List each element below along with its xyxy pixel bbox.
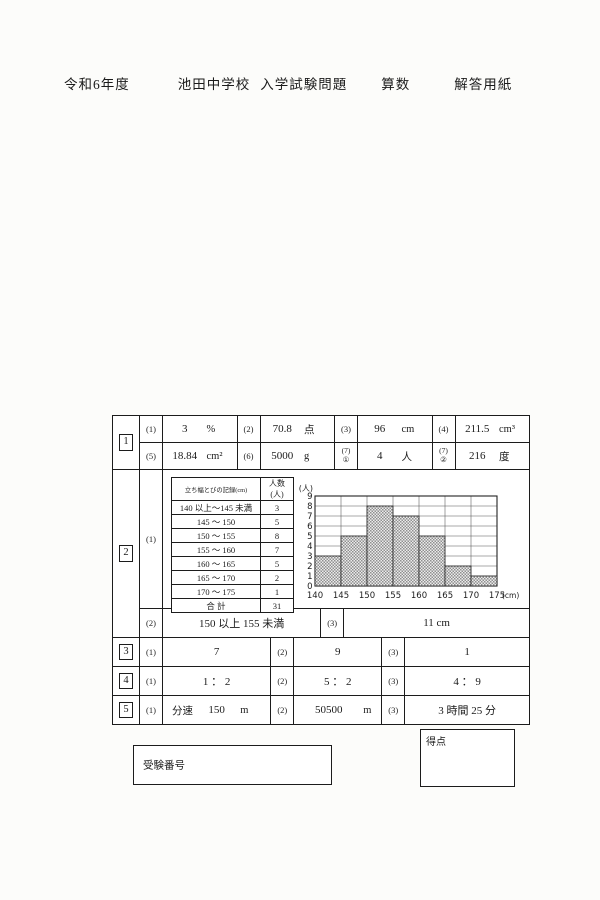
frequency-table-header: 立ち幅とびの記録(cm) 人数(人) (172, 478, 294, 501)
hist-y-tick: 8 (307, 502, 312, 512)
score-label: 得点 (426, 733, 446, 748)
p1-a1-unit: % (207, 424, 237, 435)
hist-x-tick: 155 (385, 591, 401, 601)
p5-a3-answer: 3 時間 25 分 (405, 696, 529, 724)
p1-a2-unit: 点 (304, 422, 334, 437)
hist-x-tick: 170 (463, 591, 479, 601)
problem-3-number-cell: 3 (113, 638, 140, 666)
freq-range: 165 ～ 170 (172, 571, 261, 585)
p2-a2-label: (2) (140, 609, 163, 637)
p1-a5-label: (5) (140, 443, 163, 469)
p2-a1-label: (1) (140, 470, 163, 608)
p1-a6-unit: g (304, 451, 334, 462)
problem-4-number: 4 (119, 673, 133, 690)
p1-a8-unit: 度 (499, 449, 529, 464)
hist-xlabel: (cm) (502, 591, 519, 600)
freq-range: 170 ～ 175 (172, 585, 261, 599)
p5-a2-label: (2) (271, 696, 294, 724)
problem-2-number: 2 (119, 545, 133, 562)
p1-a2-answer: 70.8 点 (261, 416, 336, 442)
freq-total-row: 合 計31 (172, 599, 294, 613)
p1-a5-value: 18.84 (163, 450, 207, 462)
problem-5-number-cell: 5 (113, 696, 140, 724)
p4-a2-answer: 5 ： 2 (294, 667, 382, 695)
p4-a2-label: (2) (271, 667, 294, 695)
problem-2-row: 2 (1) 立ち幅とびの記録(cm) 人数(人) 140 以上～145 未満3 … (113, 469, 529, 637)
title-school: 池田中学校 (178, 73, 251, 93)
p1-a2-label: (2) (238, 416, 261, 442)
hist-x-tick: 150 (359, 591, 375, 601)
p2-a2-value: 150 以上 155 未満 (199, 615, 284, 631)
p1-a6-label: (6) (238, 443, 261, 469)
problem-5-number: 5 (119, 702, 133, 719)
problem-3-row: 3 (1) 7 (2) 9 (3) 1 (113, 637, 529, 666)
hist-y-tick: 6 (307, 522, 312, 532)
freq-row: 145 ～ 1505 (172, 515, 294, 529)
problem-1-number-cell: 1 (113, 416, 140, 469)
freq-row: 170 ～ 1751 (172, 585, 294, 599)
p2-a3-value: 11 cm (423, 617, 450, 629)
p3-a1-answer: 7 (163, 638, 271, 666)
freq-count: 5 (261, 557, 294, 571)
p1-a4-answer: 211.5 cm³ (456, 416, 530, 442)
hist-y-tick: 9 (307, 492, 312, 502)
p1-a2-value: 70.8 (261, 423, 305, 435)
problem-1-row: 1 (1) 3 % (2) 70.8 点 (3) 96 cm (4) (113, 416, 529, 469)
p4-a3-label: (3) (382, 667, 405, 695)
p1-a5-unit: cm² (207, 451, 237, 462)
p1-a1-answer: 3 % (163, 416, 238, 442)
p1-a7-answer: 4 人 (358, 443, 433, 469)
problem-4-number-cell: 4 (113, 667, 140, 695)
hist-y-tick: 2 (307, 562, 312, 572)
p3-a2-value: 9 (335, 646, 341, 658)
freq-total-label: 合 計 (172, 599, 261, 613)
p5-a1-unit: m (240, 705, 270, 716)
p1-a7-label-sub: ① (343, 456, 350, 465)
p1-a7-unit: 人 (402, 449, 432, 464)
hist-x-tick: 145 (333, 591, 349, 601)
frequency-table: 立ち幅とびの記録(cm) 人数(人) 140 以上～145 未満3 145 ～ … (171, 477, 294, 613)
freq-row: 165 ～ 1702 (172, 571, 294, 585)
histogram-svg: 0123456789140145150155160165170175(人)(cm… (295, 476, 527, 602)
examinee-number-box: 受験番号 (133, 745, 332, 785)
p3-a1-label: (1) (140, 638, 163, 666)
title-sheet-label: 解答用紙 (454, 73, 512, 93)
p5-a3-value: 3 時間 25 分 (438, 702, 496, 718)
p4-a2-value: 5 ： 2 (324, 673, 352, 689)
freq-count: 7 (261, 543, 294, 557)
p5-a1-value: 150 (193, 704, 240, 716)
p1-a6-answer: 5000 g (261, 443, 336, 469)
freq-count: 2 (261, 571, 294, 585)
hist-y-tick: 7 (307, 512, 312, 522)
hist-bar (315, 556, 341, 586)
p3-a2-label: (2) (271, 638, 294, 666)
p1-a6-value: 5000 (261, 450, 305, 462)
p4-a1-label: (1) (140, 667, 163, 695)
p3-a2-answer: 9 (294, 638, 382, 666)
freq-range: 140 以上～145 未満 (172, 501, 261, 515)
p1-a5-answer: 18.84 cm² (163, 443, 238, 469)
p4-a1-value: 1 ： 2 (203, 673, 231, 689)
score-box: 得点 (420, 729, 515, 787)
p5-a2-answer: 50500 m (294, 696, 382, 724)
p2-a3-answer: 11 cm (344, 609, 529, 637)
p4-a3-answer: 4 ： 9 (405, 667, 529, 695)
hist-x-tick: 140 (307, 591, 323, 601)
sheet-title: 令和6年度 池田中学校 入学試験問題 算数 解答用紙 (64, 73, 512, 93)
hist-y-tick: 3 (307, 552, 312, 562)
freq-row: 150 ～ 1558 (172, 529, 294, 543)
p3-a1-value: 7 (214, 646, 220, 658)
p1-a4-label: (4) (433, 416, 456, 442)
freq-range: 145 ～ 150 (172, 515, 261, 529)
freq-row: 140 以上～145 未満3 (172, 501, 294, 515)
problem-3-number: 3 (119, 644, 133, 661)
hist-bar (393, 516, 419, 586)
p5-a2-unit: m (363, 705, 381, 716)
hist-y-tick: 5 (307, 532, 312, 542)
p4-a1-answer: 1 ： 2 (163, 667, 271, 695)
freq-row: 160 ～ 1655 (172, 557, 294, 571)
hist-bar (419, 536, 445, 586)
hist-x-tick: 165 (437, 591, 453, 601)
freq-total-count: 31 (261, 599, 294, 613)
p1-a4-unit: cm³ (499, 424, 529, 435)
p1-a4-value: 211.5 (456, 423, 500, 435)
p1-a7-label: (7) ① (335, 443, 358, 469)
freq-count: 3 (261, 501, 294, 515)
examinee-number-label: 受験番号 (143, 758, 185, 773)
freq-range: 150 ～ 155 (172, 529, 261, 543)
title-year: 令和6年度 (64, 73, 130, 93)
p1-a3-label: (3) (335, 416, 358, 442)
hist-ylabel: (人) (299, 484, 313, 493)
p1-a3-answer: 96 cm (358, 416, 433, 442)
title-exam: 入学試験問題 (260, 73, 347, 93)
freq-row: 155 ～ 1607 (172, 543, 294, 557)
p2-a3-label: (3) (321, 609, 344, 637)
p5-a2-value: 50500 (294, 704, 363, 716)
p5-a1-prefix: 分速 (163, 703, 193, 718)
hist-bar (341, 536, 367, 586)
answer-table: 1 (1) 3 % (2) 70.8 点 (3) 96 cm (4) (112, 415, 530, 725)
hist-bar (445, 566, 471, 586)
freq-header-range: 立ち幅とびの記録(cm) (172, 478, 261, 501)
p3-a3-answer: 1 (405, 638, 529, 666)
p1-a3-unit: cm (402, 424, 432, 435)
hist-bar (471, 576, 497, 586)
hist-x-tick: 160 (411, 591, 427, 601)
p1-a8-label: (7) ② (433, 443, 456, 469)
freq-range: 155 ～ 160 (172, 543, 261, 557)
freq-range: 160 ～ 165 (172, 557, 261, 571)
title-subject: 算数 (381, 73, 410, 93)
p5-a1-label: (1) (140, 696, 163, 724)
p1-a3-value: 96 (358, 423, 402, 435)
p1-a1-value: 3 (163, 423, 207, 435)
problem-4-row: 4 (1) 1 ： 2 (2) 5 ： 2 (3) 4 ： 9 (113, 666, 529, 695)
p1-a7-value: 4 (358, 450, 402, 462)
freq-count: 1 (261, 585, 294, 599)
freq-count: 5 (261, 515, 294, 529)
freq-count: 8 (261, 529, 294, 543)
p5-a3-label: (3) (382, 696, 405, 724)
hist-bar (367, 506, 393, 586)
problem-1-number: 1 (119, 434, 133, 451)
p3-a3-label: (3) (382, 638, 405, 666)
p1-a8-label-sub: ② (440, 456, 447, 465)
p1-a8-answer: 216 度 (456, 443, 530, 469)
p4-a3-value: 4 ： 9 (453, 673, 481, 689)
p5-a1-answer: 分速 150 m (163, 696, 271, 724)
freq-header-count: 人数(人) (261, 478, 294, 501)
problem-5-row: 5 (1) 分速 150 m (2) 50500 m (3) 3 時間 25 分 (113, 695, 529, 724)
p1-a1-label: (1) (140, 416, 163, 442)
p2-a2-answer: 150 以上 155 未満 (163, 609, 321, 637)
hist-y-tick: 1 (307, 572, 312, 582)
p2-a1-answer-area: 立ち幅とびの記録(cm) 人数(人) 140 以上～145 未満3 145 ～ … (163, 470, 529, 608)
p3-a3-value: 1 (464, 646, 470, 658)
hist-y-tick: 4 (307, 542, 312, 552)
p1-a8-value: 216 (456, 450, 500, 462)
problem-2-number-cell: 2 (113, 470, 140, 637)
